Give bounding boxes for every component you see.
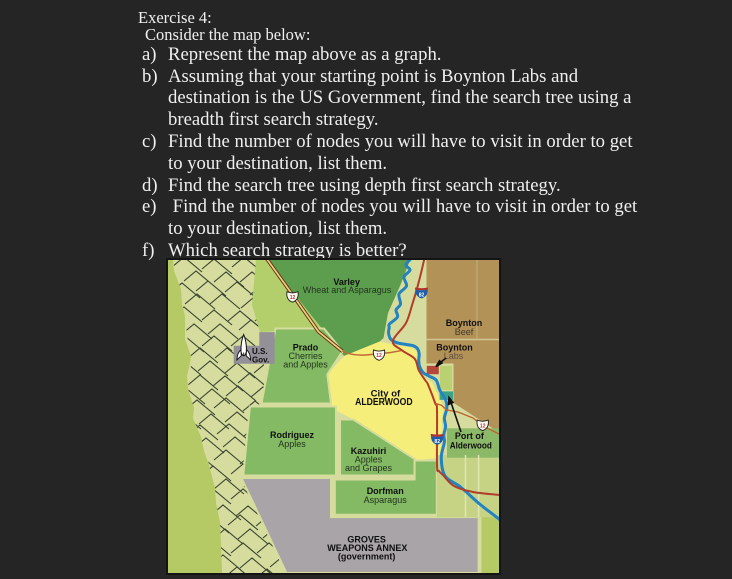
svg-text:Apples: Apples [278, 439, 306, 449]
svg-text:Labs: Labs [444, 351, 464, 361]
svg-text:Wheat and Asparagus: Wheat and Asparagus [303, 285, 392, 295]
svg-text:12: 12 [290, 295, 296, 301]
svg-text:(government): (government) [338, 552, 396, 562]
svg-text:Beef: Beef [455, 327, 474, 337]
svg-text:Gov.: Gov. [252, 356, 269, 365]
svg-text:82: 82 [419, 293, 425, 299]
svg-text:12: 12 [480, 423, 486, 429]
svg-text:and Apples: and Apples [283, 360, 328, 370]
svg-text:Asparagus: Asparagus [364, 495, 408, 505]
svg-text:Alderwood: Alderwood [450, 441, 492, 451]
svg-text:12: 12 [376, 353, 382, 359]
svg-text:and Grapes: and Grapes [345, 463, 393, 473]
svg-text:82: 82 [434, 439, 440, 445]
svg-text:ALDERWOOD: ALDERWOOD [355, 396, 413, 408]
svg-text:Port of: Port of [455, 431, 485, 441]
